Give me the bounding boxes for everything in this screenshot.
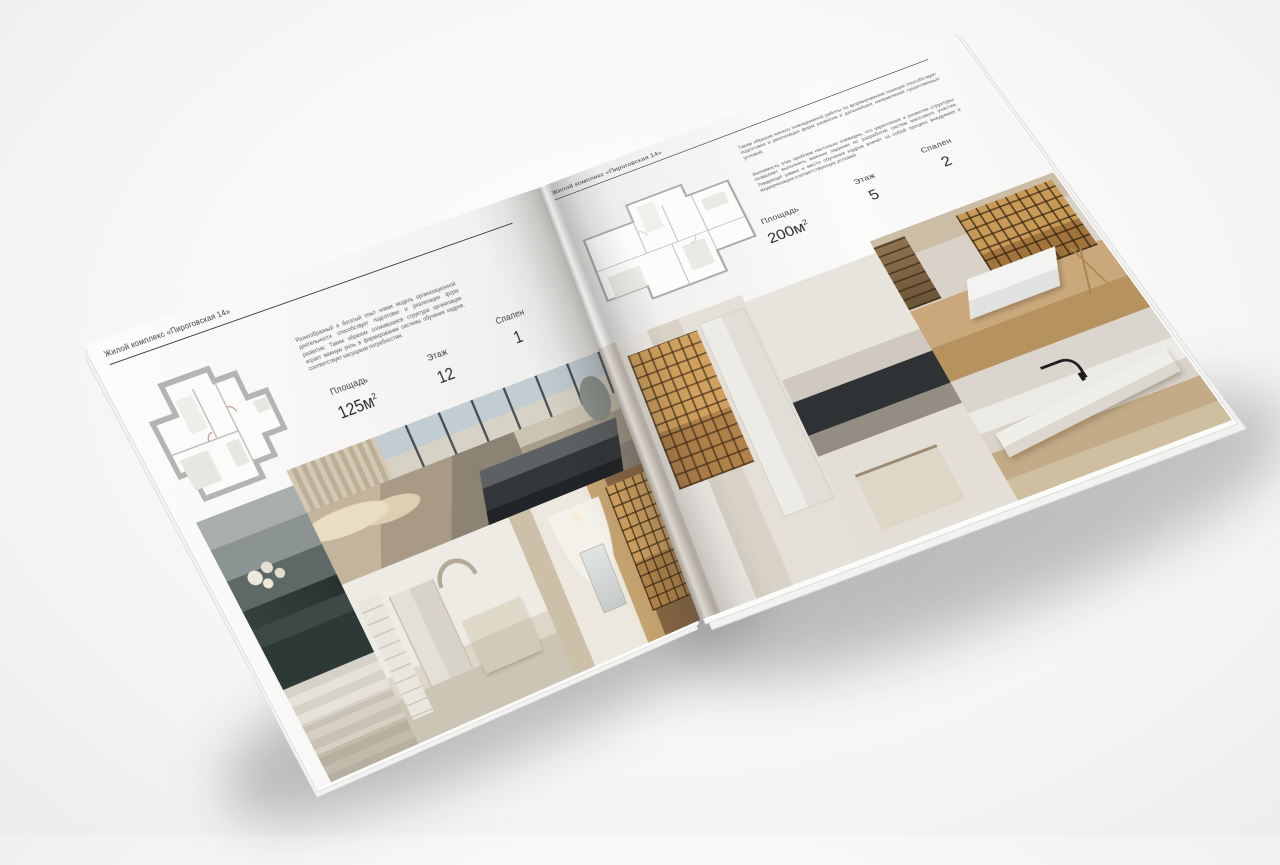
stat-floor: Этаж 12 [408, 340, 476, 395]
tripod-lamp-leg [1079, 246, 1092, 295]
towel-rail [854, 444, 966, 531]
stat-area: Площадь 125м2 [311, 368, 397, 430]
marble-counter [995, 349, 1181, 458]
stat-bedrooms: Спален 1 [478, 301, 551, 358]
page-header: Жилой комплекс «Пироговская 14» [102, 306, 232, 359]
tripod-lamp-leg [1070, 248, 1113, 288]
bed [462, 597, 542, 674]
stat-area: Площадь 200м2 [742, 198, 829, 253]
stat-bedrooms: Спален 2 [902, 130, 983, 181]
brochure-spread-photo: Жилой комплекс «Пироговская 14» Разнообр… [0, 0, 1280, 835]
stat-floor: Этаж 5 [835, 165, 907, 214]
